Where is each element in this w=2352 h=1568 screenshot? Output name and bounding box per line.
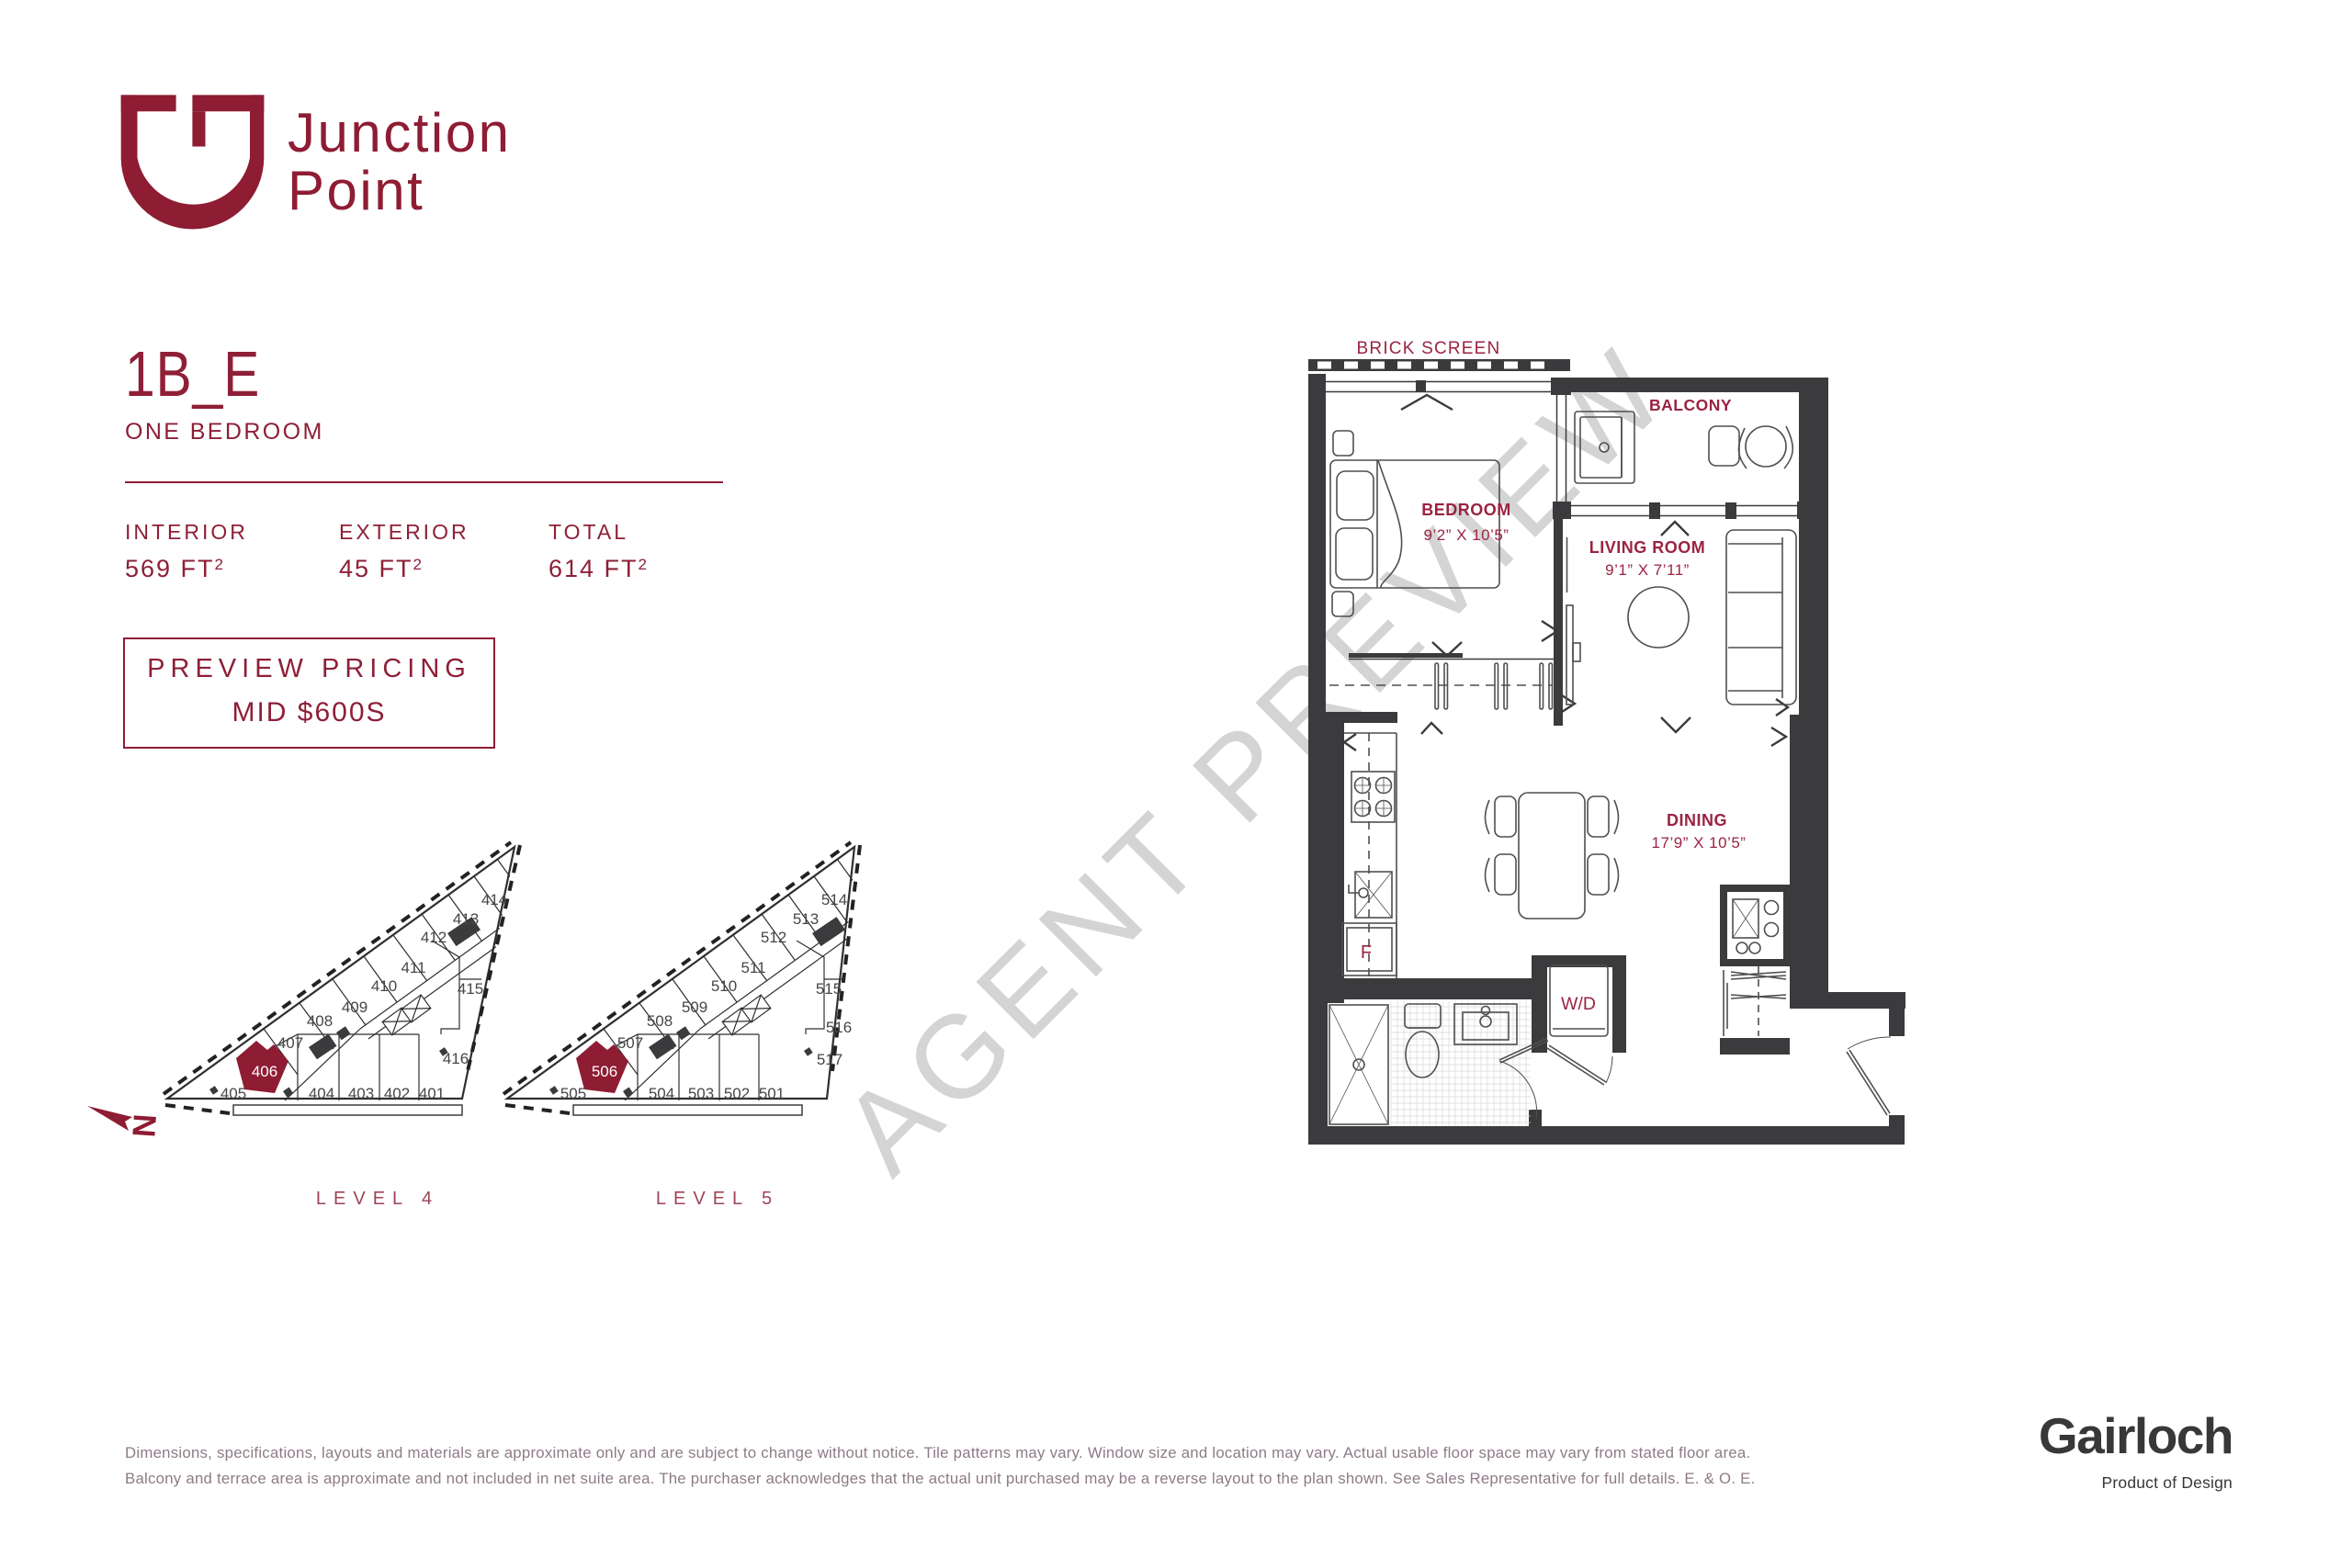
svg-text:404: 404 xyxy=(309,1085,334,1102)
svg-text:415: 415 xyxy=(458,980,483,998)
svg-text:514: 514 xyxy=(821,891,847,908)
svg-text:408: 408 xyxy=(307,1012,333,1030)
svg-text:403: 403 xyxy=(348,1085,374,1102)
svg-text:412: 412 xyxy=(421,929,447,946)
svg-text:411: 411 xyxy=(401,959,425,976)
svg-text:BALCONY: BALCONY xyxy=(1649,396,1732,414)
svg-text:502: 502 xyxy=(724,1085,750,1102)
svg-text:508: 508 xyxy=(647,1012,673,1030)
svg-text:507: 507 xyxy=(617,1034,643,1052)
svg-text:401: 401 xyxy=(419,1085,445,1102)
svg-text:503: 503 xyxy=(688,1085,714,1102)
svg-text:501: 501 xyxy=(759,1085,785,1102)
svg-text:N: N xyxy=(125,1112,163,1138)
svg-text:W/D: W/D xyxy=(1561,994,1596,1014)
svg-text:9’1” X 7’11”: 9’1” X 7’11” xyxy=(1605,561,1690,579)
svg-text:9’2” X 10’5”: 9’2” X 10’5” xyxy=(1424,526,1510,544)
svg-text:513: 513 xyxy=(793,910,819,928)
svg-text:509: 509 xyxy=(682,998,707,1016)
svg-text:LIVING ROOM: LIVING ROOM xyxy=(1589,538,1706,557)
svg-text:402: 402 xyxy=(384,1085,410,1102)
svg-text:DINING: DINING xyxy=(1667,811,1727,829)
svg-text:517: 517 xyxy=(817,1051,842,1068)
svg-text:BRICK SCREEN: BRICK SCREEN xyxy=(1357,339,1501,358)
svg-text:516: 516 xyxy=(826,1019,852,1036)
svg-text:506: 506 xyxy=(592,1063,617,1080)
svg-text:LEVEL 5: LEVEL 5 xyxy=(656,1189,779,1209)
svg-text:406: 406 xyxy=(252,1063,277,1080)
svg-text:414: 414 xyxy=(481,891,507,908)
svg-text:409: 409 xyxy=(342,998,367,1016)
svg-text:512: 512 xyxy=(761,929,786,946)
svg-text:511: 511 xyxy=(741,959,765,976)
svg-text:515: 515 xyxy=(816,980,842,998)
svg-text:BEDROOM: BEDROOM xyxy=(1421,501,1511,519)
svg-text:LEVEL 4: LEVEL 4 xyxy=(316,1189,439,1209)
svg-text:407: 407 xyxy=(277,1034,303,1052)
svg-text:413: 413 xyxy=(453,910,479,928)
svg-text:416: 416 xyxy=(443,1050,469,1067)
svg-text:505: 505 xyxy=(560,1085,586,1102)
svg-text:17’9” X 10’5”: 17’9” X 10’5” xyxy=(1652,834,1747,852)
svg-text:410: 410 xyxy=(371,977,397,995)
svg-text:504: 504 xyxy=(649,1085,674,1102)
svg-text:AGENT PREVIEW: AGENT PREVIEW xyxy=(818,321,1695,1199)
svg-text:510: 510 xyxy=(711,977,737,995)
svg-text:F: F xyxy=(1361,942,1372,963)
svg-text:405: 405 xyxy=(220,1085,246,1102)
